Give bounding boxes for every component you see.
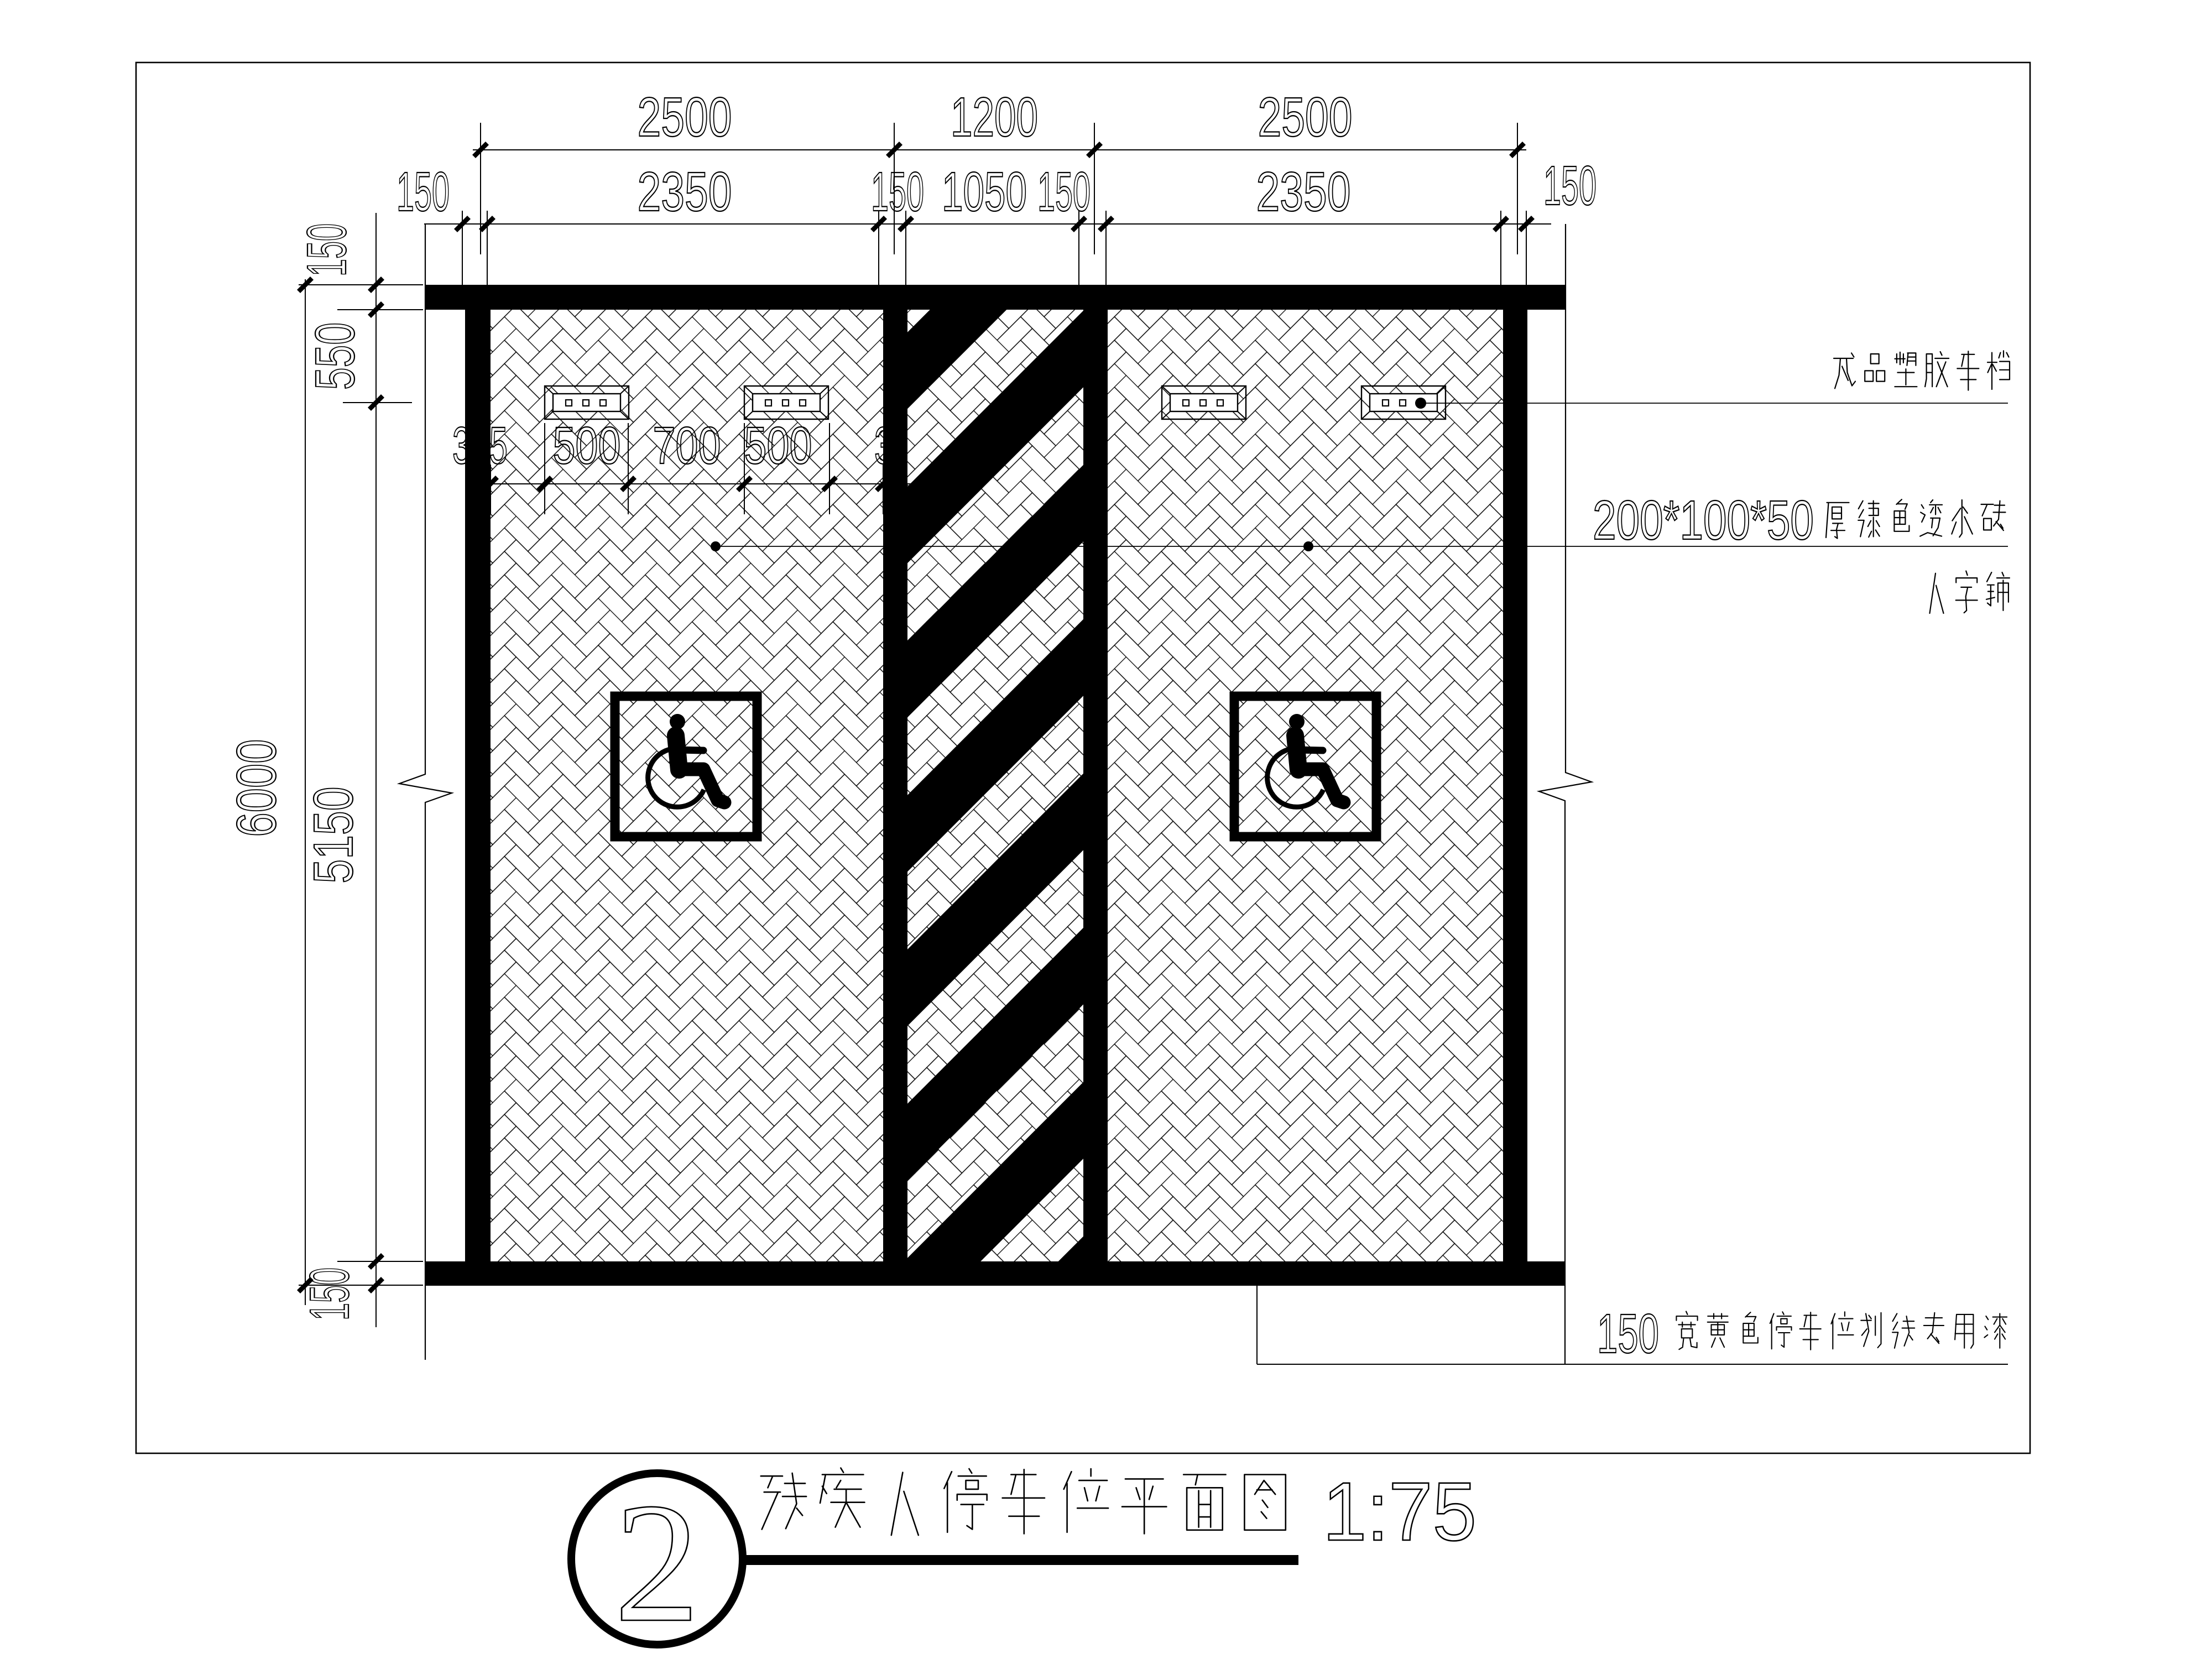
svg-text:150: 150 [1037,161,1091,223]
svg-text:2: 2 [614,1468,700,1658]
svg-text:6000: 6000 [226,739,288,837]
svg-text:150: 150 [299,1267,361,1321]
svg-text:500: 500 [744,416,812,475]
svg-text:2500: 2500 [638,86,732,148]
svg-text:1:75: 1:75 [1323,1465,1477,1558]
svg-text:550: 550 [304,322,366,390]
svg-text:700: 700 [653,416,721,475]
svg-text:500: 500 [553,416,621,475]
svg-text:1050: 1050 [942,161,1027,223]
svg-text:150: 150 [1543,155,1597,217]
svg-text:150: 150 [1597,1303,1659,1365]
svg-text:2350: 2350 [638,161,732,223]
svg-text:150: 150 [397,161,450,223]
svg-text:150: 150 [296,223,358,276]
svg-text:1200: 1200 [951,86,1038,148]
svg-text:5150: 5150 [302,787,364,884]
svg-text:150: 150 [871,161,924,223]
svg-text:200*100*50: 200*100*50 [1593,489,1814,551]
svg-text:2500: 2500 [1258,86,1353,148]
svg-text:2350: 2350 [1256,161,1351,223]
